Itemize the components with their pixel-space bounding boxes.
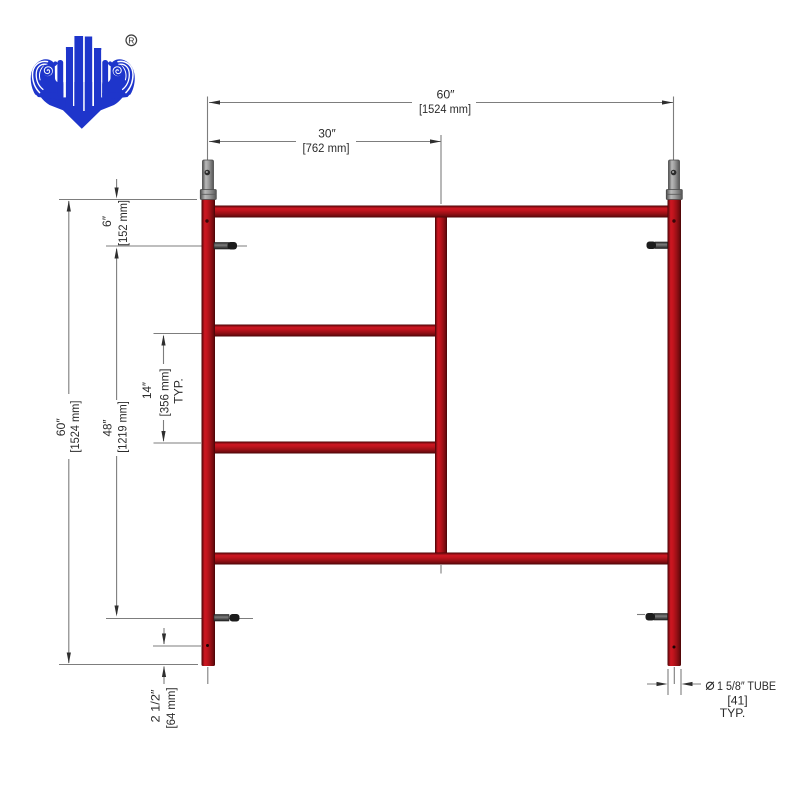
svg-text:[152 mm]: [152 mm] [116,200,130,246]
svg-text:TYP.: TYP. [171,378,185,404]
svg-text:[762 mm]: [762 mm] [303,141,350,155]
svg-text:[1524 mm]: [1524 mm] [68,401,82,453]
svg-text:14″: 14″ [140,381,154,399]
svg-text:2 1/2″: 2 1/2″ [148,689,162,723]
svg-text:60″: 60″ [437,88,456,102]
svg-text:[356 mm]: [356 mm] [157,369,171,417]
svg-text:R: R [128,35,134,45]
svg-text:[64 mm]: [64 mm] [164,688,178,729]
svg-text:48″: 48″ [100,419,114,437]
svg-text:6″: 6″ [100,215,114,227]
svg-text:1 5/8″ TUBE: 1 5/8″ TUBE [717,679,776,693]
svg-text:[1524 mm]: [1524 mm] [419,102,471,116]
svg-text:30″: 30″ [318,127,336,141]
svg-text:[1219 mm]: [1219 mm] [116,401,130,453]
svg-text:60″: 60″ [54,418,68,437]
svg-text:TYP.: TYP. [720,706,746,720]
